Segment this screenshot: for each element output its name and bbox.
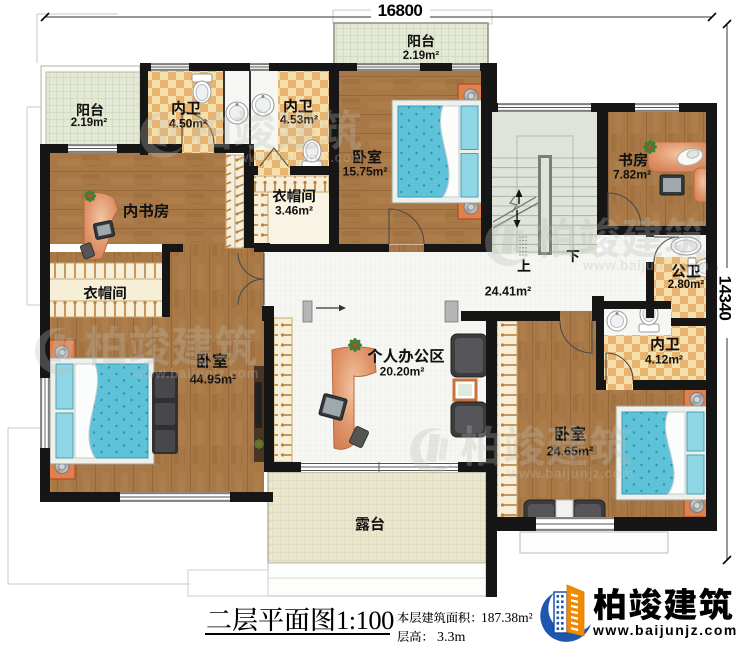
svg-text:3.3m: 3.3m [437, 630, 466, 645]
svg-text:2.19m²: 2.19m² [403, 50, 440, 62]
svg-text:187.38m²: 187.38m² [481, 610, 533, 625]
svg-text:24.41m²: 24.41m² [485, 285, 532, 299]
svg-text:20.20m²: 20.20m² [380, 364, 425, 378]
svg-text:15.75m²: 15.75m² [343, 164, 388, 178]
svg-text:4.12m²: 4.12m² [645, 352, 683, 366]
svg-text:www.baijunjz.com: www.baijunjz.com [592, 622, 738, 638]
svg-text:14340: 14340 [716, 276, 735, 321]
svg-text:1:100: 1:100 [336, 605, 394, 635]
svg-text:3.46m²: 3.46m² [275, 203, 313, 217]
svg-text:2.80m²: 2.80m² [668, 279, 705, 291]
svg-text:2.19m²: 2.19m² [71, 117, 108, 129]
svg-text:16800: 16800 [378, 1, 423, 20]
svg-text:7.82m²: 7.82m² [613, 167, 651, 181]
